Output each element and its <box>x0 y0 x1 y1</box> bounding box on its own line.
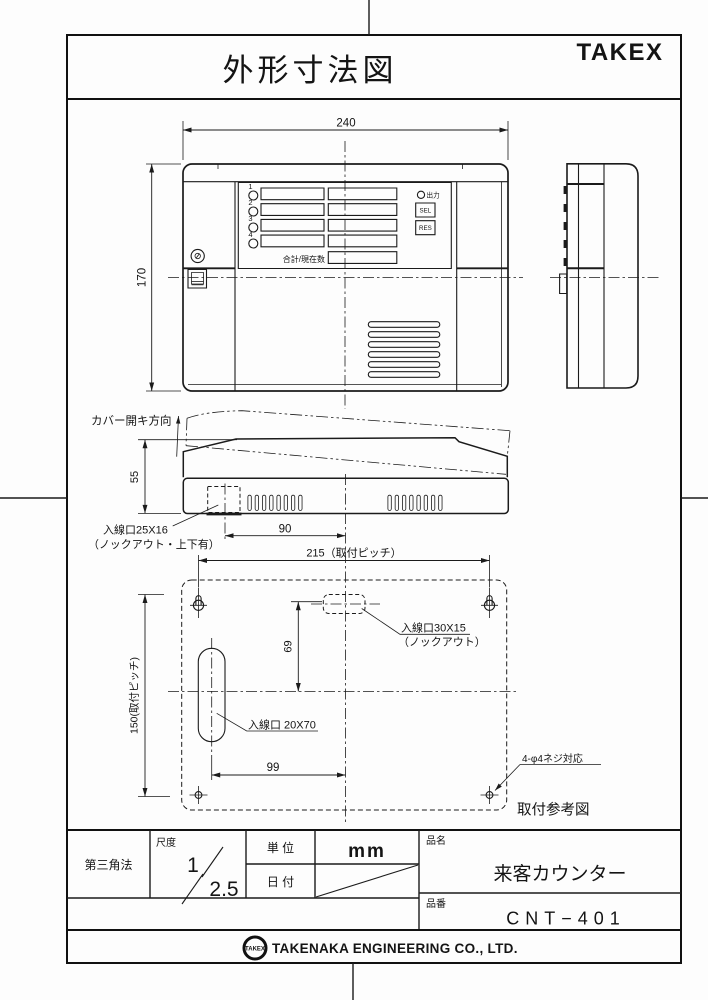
inlet-30x15-label: 入線口30X15 <box>401 621 466 635</box>
led-number-1: 1 <box>248 182 252 191</box>
takex-logo-icon: TAKEX <box>244 937 266 959</box>
counter-label: 合計/現在数 <box>283 254 325 264</box>
inlet-25x16-note: （ノックアウト・上下有） <box>88 537 220 551</box>
date-label: 日 付 <box>267 875 294 889</box>
header: 外形寸法図 TAKEX <box>223 39 664 88</box>
scale-label: 尺度 <box>156 836 176 849</box>
res-button-label: RES <box>419 225 432 232</box>
led-4 <box>249 239 258 248</box>
scale-numerator: 1 <box>187 854 199 877</box>
name-plate <box>261 235 324 247</box>
screw-label: 4-φ4ネジ対応 <box>522 752 583 765</box>
cover-latch <box>188 270 207 289</box>
sel-button-label: SEL <box>420 207 432 214</box>
front-view: 240 170 1 2 3 4 <box>137 118 524 410</box>
knockout-25x16 <box>208 487 240 513</box>
led-number-4: 4 <box>248 230 252 239</box>
projection-label: 第三角法 <box>84 858 132 872</box>
profile-view: カバー開キ方向 <box>88 411 510 551</box>
dim-depth-label: 55 <box>129 471 141 483</box>
takex-logo-text: TAKEX <box>245 946 265 952</box>
side-latch <box>560 274 567 294</box>
led-number-3: 3 <box>248 214 252 223</box>
dim-pitch-v-label: 150(取付ピッチ) <box>128 657 141 734</box>
cover-direction-label: カバー開キ方向 <box>91 414 172 428</box>
dim-90-label: 90 <box>279 524 292 536</box>
output-led <box>417 191 424 198</box>
counter-window <box>328 204 397 216</box>
name-plate <box>261 204 324 216</box>
product-name-value: 来客カウンター <box>493 863 626 885</box>
name-plate <box>261 188 324 200</box>
product-number-value: CNT−401 <box>506 909 626 929</box>
mounting-caption: 取付参考図 <box>517 802 590 819</box>
product-name-label: 品名 <box>426 834 446 847</box>
dim-69-label: 69 <box>283 640 295 652</box>
counter-window <box>328 219 397 231</box>
lock-keyhole <box>191 249 204 262</box>
name-plate <box>261 219 324 231</box>
counter-window <box>328 235 397 247</box>
title-block: 第三角法 尺度 1 2.5 単 位 mm 日 付 品名 来客カウンター 品番 C… <box>67 830 681 930</box>
keyhole-slot-left <box>190 588 207 619</box>
screw-mark-right <box>481 786 499 804</box>
speaker-grille <box>368 322 440 378</box>
cover-direction-arrow <box>177 416 179 457</box>
company-name: TAKENAKA ENGINEERING CO., LTD. <box>272 941 518 956</box>
inlet-30x15-note: （ノックアウト） <box>398 636 486 649</box>
keyhole-slot-right <box>481 588 498 619</box>
unit-value: mm <box>348 841 386 862</box>
scale-denominator: 2.5 <box>209 878 238 901</box>
screw-mark-left <box>190 786 208 804</box>
output-label: 出力 <box>427 191 440 200</box>
inlet-20x70-label: 入線口 20X70 <box>248 718 316 732</box>
dimension-drawing-sheet: 外形寸法図 TAKEX 240 170 1 <box>0 0 708 1000</box>
dim-width-label: 240 <box>336 118 355 130</box>
page-title: 外形寸法図 <box>223 53 398 88</box>
unit-label: 単 位 <box>267 840 294 855</box>
dim-pitch-h-label: 215（取付ピッチ） <box>306 547 401 560</box>
brand-logo: TAKEX <box>576 39 663 66</box>
product-number-label: 品番 <box>426 898 446 910</box>
mounting-view: 215（取付ピッチ） 入線口30X15 （ノックアウト） 69 <box>128 474 602 824</box>
side-view <box>550 164 659 388</box>
counter-window-total <box>328 252 397 264</box>
drawing-canvas: 外形寸法図 TAKEX 240 170 1 <box>0 0 708 1000</box>
footer: TAKEX TAKENAKA ENGINEERING CO., LTD. <box>244 937 518 959</box>
inlet-25x16-label: 入線口25X16 <box>103 523 168 537</box>
dim-99-label: 99 <box>267 762 280 774</box>
counter-window <box>328 188 397 200</box>
vent-slots <box>248 495 442 510</box>
led-number-2: 2 <box>248 198 252 207</box>
backplate-outline <box>182 580 507 810</box>
dim-height-label: 170 <box>137 268 149 287</box>
